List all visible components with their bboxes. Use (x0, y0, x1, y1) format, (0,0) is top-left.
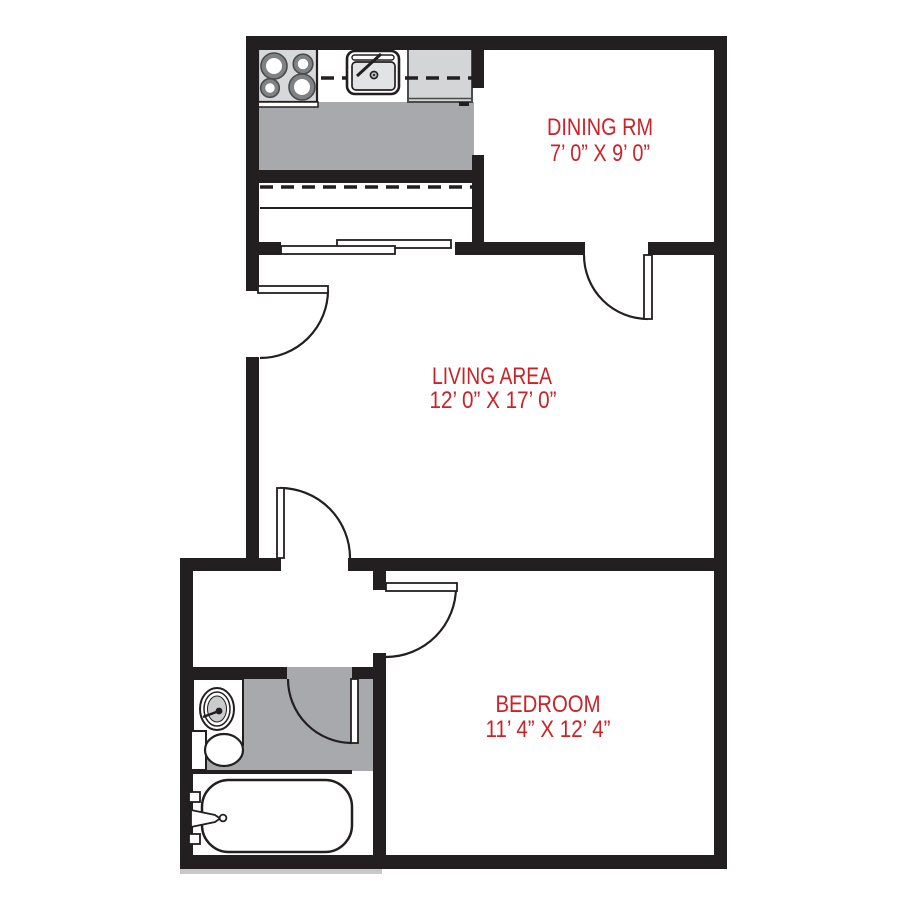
burner (292, 77, 313, 98)
burner (264, 56, 285, 77)
door-swing-arc (280, 488, 350, 558)
refrigerator-icon (408, 48, 472, 102)
wall-segment (373, 571, 386, 590)
wall-segment (714, 36, 727, 868)
burner (263, 81, 277, 95)
door-leaf (386, 583, 457, 591)
entry-door (258, 286, 328, 358)
sliding-door-panel (281, 246, 395, 254)
bedroom-door (386, 583, 457, 657)
dining-door (584, 255, 652, 319)
living-area-label: LIVING AREA (432, 363, 552, 390)
tub-partition-line (193, 770, 352, 774)
wall-segment (373, 653, 386, 855)
wall-shadow (180, 869, 382, 874)
wall-segment (455, 242, 585, 255)
tub-tap (189, 792, 200, 802)
burner (296, 57, 311, 72)
vanity-drain (216, 708, 223, 715)
kitchen-floor (258, 102, 474, 170)
door-leaf (258, 286, 328, 293)
wall-segment (348, 558, 714, 571)
door-swing-arc (260, 290, 328, 358)
sliding-doors (281, 240, 451, 254)
tub-tap (189, 834, 200, 844)
living-area-dimensions: 12’ 0” X 17’ 0” (430, 387, 557, 414)
wall-segment (648, 242, 714, 255)
floor-plan-drawing: DINING RM 7’ 0” X 9’ 0” LIVING AREA 12’ … (0, 0, 900, 900)
door-swing-arc (584, 255, 648, 319)
bedroom-label: BEDROOM (496, 691, 601, 718)
dining-room-dimensions: 7’ 0” X 9’ 0” (550, 140, 650, 167)
door-leaf (277, 488, 284, 558)
wall-segment (472, 50, 484, 88)
floor-plan-page: DINING RM 7’ 0” X 9’ 0” LIVING AREA 12’ … (0, 0, 900, 900)
door-leaf (644, 255, 652, 319)
sink-drain-dot (373, 74, 375, 76)
wall-segment (258, 170, 473, 183)
wall-segment (246, 242, 281, 255)
wall-segment (246, 357, 259, 560)
toilet-icon (205, 734, 243, 766)
door-swing-arc (386, 587, 456, 657)
tub-drain (220, 815, 227, 822)
refrigerator-handle (459, 102, 469, 106)
toilet-tank (191, 731, 206, 770)
bedroom-dimensions: 11’ 4” X 12’ 4” (486, 716, 611, 743)
door-leaf (351, 679, 358, 743)
wall-segment (180, 558, 281, 571)
wall-segment (246, 36, 727, 50)
wall-segment (180, 667, 287, 679)
wall-segment (472, 155, 484, 255)
dining-room-label: DINING RM (547, 114, 653, 141)
hall-door (277, 488, 350, 558)
wall-segment (180, 855, 727, 869)
stove-handle (257, 102, 318, 107)
wall-segment (352, 667, 386, 679)
